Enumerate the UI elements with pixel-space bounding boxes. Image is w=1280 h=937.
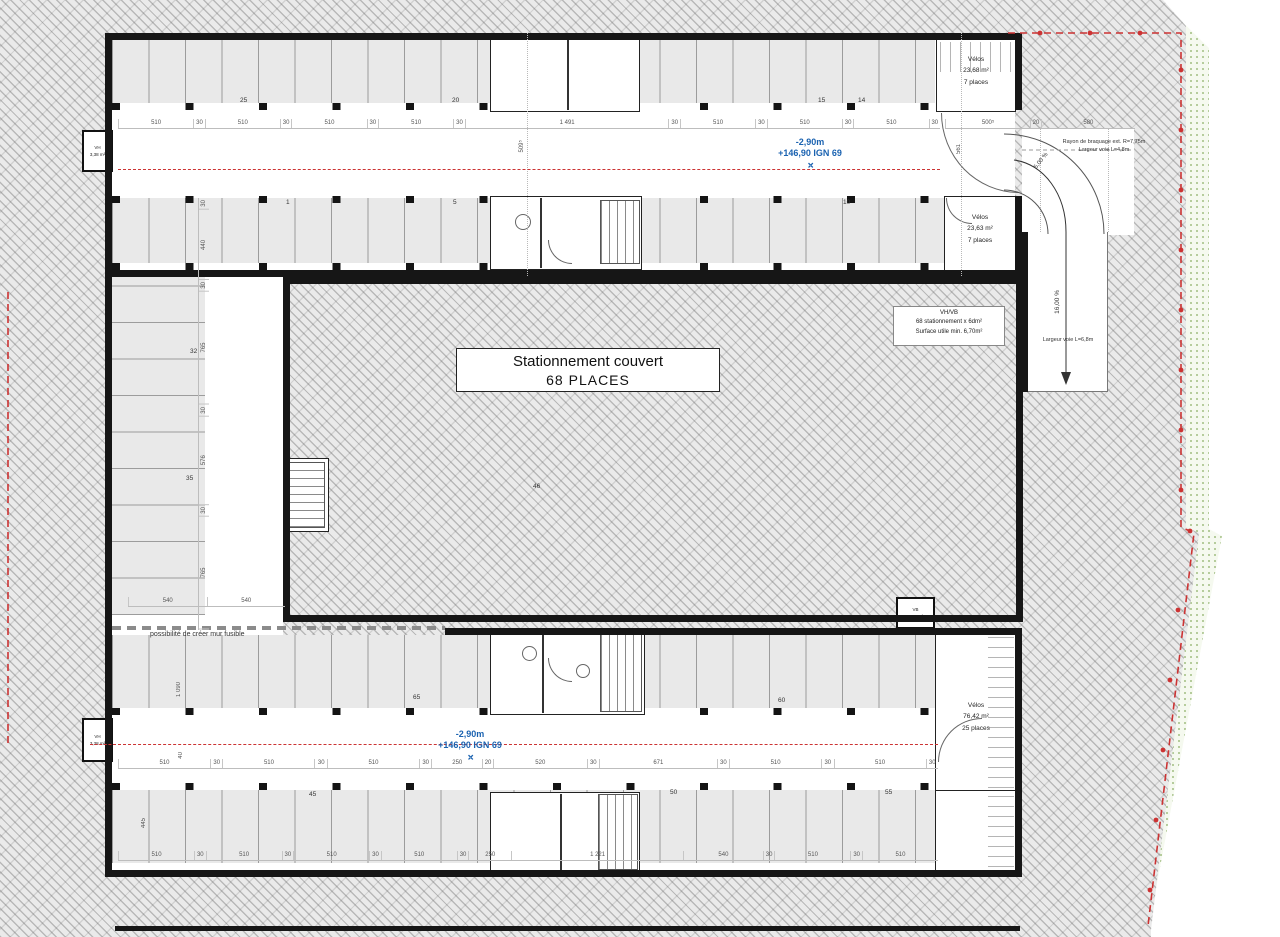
vent-shaft-bottom-mid: VB 3,38 m² [896,597,935,629]
wall [283,615,1023,622]
wall [283,277,1023,284]
stall-number: 45 [309,791,316,798]
parking-stalls-left-wing [112,277,205,615]
centerline-stub [90,744,116,745]
dimension-value: 509⁵ [519,140,525,153]
covered-parking-capacity: 68 PLACES [457,372,719,388]
stall-number: 60 [778,697,785,704]
wall [1015,628,1022,877]
bike-racks [988,795,1014,867]
level-value: -2,90m [418,729,522,740]
room-area: 23,68 m² [940,65,1012,76]
stall-number: 46 [533,483,540,490]
room-area: 23,63 m² [944,223,1016,234]
dimension-value: 30 [199,198,209,210]
dimension-value: 30 [457,851,469,860]
dimension-value: 40 [178,752,184,759]
stall-number: 32 [190,348,197,355]
level-datum: +146,90 IGN 69 [758,148,862,159]
dimension-value: 510 [205,119,280,128]
dimension-value: 1 221 [511,851,683,860]
dimension-value: 510 [774,851,850,860]
dimension-value: 510 [206,851,282,860]
dimension-value: 1 090 [176,682,182,697]
covered-parking-title-box: Stationnement couvert 68 PLACES [456,348,720,392]
dimension-value: 30 [210,759,222,768]
dimension-value: 30 [717,759,729,768]
dimension-value: 540 [128,597,207,606]
dimension-chain-left: 30440307653057630765 [198,198,209,630]
dimension-value: 250 [468,851,511,860]
dimension-value: 510 [118,759,210,768]
stall-number: 15 [818,97,825,104]
dimension-value: 561 [956,144,962,154]
dimension-value: 671 [599,759,717,768]
stall-number: 25 [240,97,247,104]
level-datum: +146,90 IGN 69 [418,740,522,751]
room-area: 76,42 m² [940,711,1012,722]
dimension-value: 30 [199,280,209,292]
dimension-value: 30 [850,851,862,860]
room-name: Vélos [940,54,1012,65]
dimension-value: 580 [1041,119,1135,128]
dimension-value: 510 [834,759,926,768]
dimension-value: 540 [683,851,763,860]
ramp-width-label: Largeur voie L=6,8m [1022,336,1114,344]
dimension-value: 30 [453,119,464,128]
wall [105,270,1022,277]
ramp-corridor [1022,232,1108,392]
dimension-value: 440 [199,210,209,280]
dimension-value: 20 [1030,119,1041,128]
room-places: 7 places [944,235,1016,246]
dimension-value: 1 491 [465,119,669,128]
dimension-value: 30 [926,759,938,768]
dimension-value: 30 [199,405,209,417]
wall [1015,196,1022,277]
dimension-value: 30 [194,851,206,860]
stall-number: 35 [186,475,193,482]
dimension-chain-bottom: 510305103051030510302501 221540305103051… [118,851,938,861]
dimension-value: 510 [327,759,419,768]
stair-core-top [490,36,640,112]
turning-radius-annotation: Rayon de braquage ext. R=7,75m Largeur v… [1026,138,1182,155]
covered-parking-title: Stationnement couvert [457,353,719,370]
dimension-chain-top: 510305103051030510301 491305103051030510… [118,119,940,129]
dimension-value: 30 [369,851,381,860]
dimension-chain-bottom-aisle: 5103051030510302502052030671305103051030 [118,759,938,769]
dimension-value: 510 [729,759,821,768]
wall [1022,232,1028,392]
vent-label: VB [898,606,933,613]
wc-icon [576,664,590,678]
retaining-wall [115,926,1020,931]
dimension-value: 30 [367,119,378,128]
dimension-value: 510 [118,851,194,860]
dimension-value: 510 [853,119,928,128]
stall-number: 65 [413,694,420,701]
column-row [112,783,1015,790]
wall [1015,33,1022,110]
dimension-value: 510 [378,119,453,128]
room-places: 25 places [940,723,1012,734]
level-annotation-bottom: -2,90m +146,90 IGN 69 ✛ [418,729,522,763]
dimension-value: 30 [193,119,204,128]
wall [445,628,1022,635]
level-value: -2,90m [758,137,862,148]
dimension-value: 510 [118,119,193,128]
wall [105,870,1022,877]
dimension-value: 500⁵ [945,119,1030,128]
dimension-value: 30 [282,851,294,860]
stair-icon [600,632,642,712]
dimension-value: 510 [862,851,938,860]
vhvb-rule: 68 stationnement x 6dm² [894,318,1004,327]
dimension-value: 30 [821,759,833,768]
core-partition [540,198,542,268]
dimension-value: 30 [842,119,853,128]
stall-number: 14 [858,97,865,104]
level-annotation-top: -2,90m +146,90 IGN 69 ✛ [758,137,862,171]
room-places: 7 places [940,77,1012,88]
dimension-value: 576 [199,417,209,505]
velos-bottom-label: Vélos 76,42 m² 25 places [940,700,1012,734]
dimension-value: 30 [755,119,766,128]
dimension-value: 445 [141,818,147,828]
core-partition [542,632,544,713]
dimension-value: 30 [199,505,209,517]
stair-icon [289,462,325,528]
dimension-value: 30 [314,759,326,768]
stall-number: 55 [885,789,892,796]
velos-mid-label: Vélos 23,63 m² 7 places [944,212,1016,246]
dimension-value: 765 [199,516,209,630]
stair-icon [600,200,640,264]
drive-aisle-centerline-bottom [118,744,938,745]
stall-number: 1 [286,199,290,206]
dimension-value: 30 [587,759,599,768]
dimension-value: 765 [199,291,209,405]
dimension-value: 30 [929,119,940,128]
dimension-value: 540 [207,597,286,606]
lane-width-value: Largeur voie L=4,8m [1026,146,1182,154]
room-name: Vélos [944,212,1016,223]
dimension-value: 510 [291,119,366,128]
stall-number: 5 [453,199,457,206]
dimension-chain-top-right: 500⁵20580 [945,119,1135,129]
room-name: Vélos [940,700,1012,711]
velos-top-label: Vélos 23,68 m² 7 places [940,54,1012,88]
dimension-value: 30 [280,119,291,128]
fusible-wall-line [112,626,445,630]
vhvb-annotation-box: VH/VB 68 stationnement x 6dm² Surface ut… [893,306,1005,346]
wall [105,33,1022,40]
turning-radius-value: Rayon de braquage ext. R=7,75m [1026,138,1182,146]
wc-icon [515,214,531,230]
fusible-wall-label: possibilité de créer mur fusible [150,631,245,638]
vhvb-surface: Surface utile min. 6,70m² [894,328,1004,337]
vhvb-title: VH/VB [894,309,1004,318]
dimension-value: 510 [381,851,457,860]
floor-plan-canvas: { "colors":{"accent_blue":"#1a62b0","bou… [0,0,1280,937]
dimension-value: 30 [668,119,679,128]
stall-number: 50 [670,789,677,796]
ramp-slope-lower-label: 16,00 % [1054,290,1061,314]
dimension-value: 30 [763,851,775,860]
wc-icon [522,646,537,661]
wall [105,33,112,877]
dimension-value: 510 [222,759,314,768]
dimension-value: 510 [680,119,755,128]
grid-line [527,33,528,276]
core-partition [567,38,569,110]
stall-number: 20 [452,97,459,104]
dimension-value: 510 [293,851,369,860]
wall [283,277,290,622]
